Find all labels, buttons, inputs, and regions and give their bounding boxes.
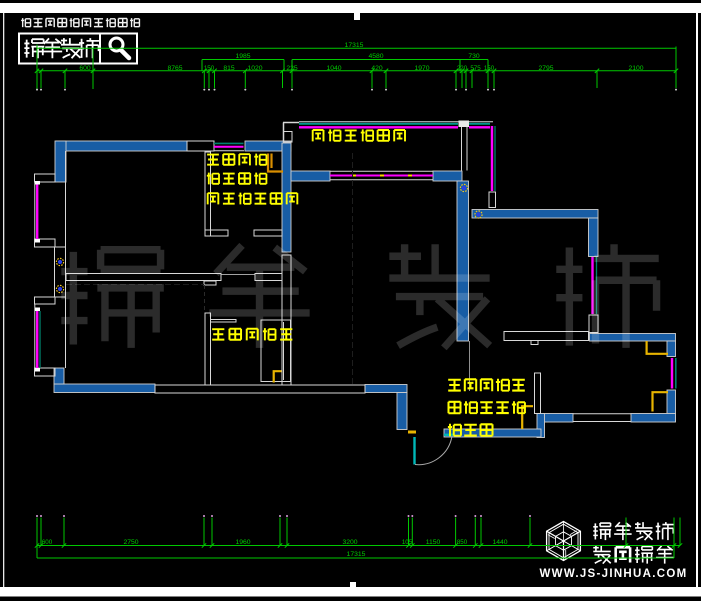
svg-text:1150: 1150: [426, 539, 441, 546]
svg-text:600: 600: [79, 65, 91, 72]
svg-text:1020: 1020: [247, 65, 262, 72]
svg-text:420: 420: [371, 65, 383, 72]
svg-text:17315: 17315: [347, 551, 366, 558]
svg-text:150: 150: [204, 65, 215, 72]
svg-text:2750: 2750: [123, 539, 138, 546]
svg-text:17315: 17315: [345, 42, 364, 49]
svg-text:1985: 1985: [235, 53, 250, 60]
svg-text:1040: 1040: [326, 65, 341, 72]
svg-text:600: 600: [42, 539, 53, 546]
svg-text:3200: 3200: [342, 539, 357, 546]
svg-text:815: 815: [223, 65, 235, 72]
svg-text:730: 730: [468, 53, 480, 60]
svg-text:225: 225: [286, 65, 298, 72]
svg-text:150: 150: [484, 65, 495, 72]
svg-text:4580: 4580: [368, 53, 383, 60]
svg-text:2795: 2795: [538, 65, 553, 72]
svg-text:850: 850: [457, 539, 468, 546]
svg-text:1970: 1970: [414, 65, 429, 72]
svg-text:575: 575: [470, 65, 481, 72]
svg-text:105: 105: [402, 539, 413, 546]
svg-text:WWW.JS-JINHUA.COM: WWW.JS-JINHUA.COM: [540, 568, 688, 580]
svg-text:1440: 1440: [492, 539, 507, 546]
svg-text:2100: 2100: [628, 65, 643, 72]
svg-text:220: 220: [457, 65, 468, 72]
svg-text:1960: 1960: [235, 539, 250, 546]
svg-text:8765: 8765: [167, 65, 182, 72]
